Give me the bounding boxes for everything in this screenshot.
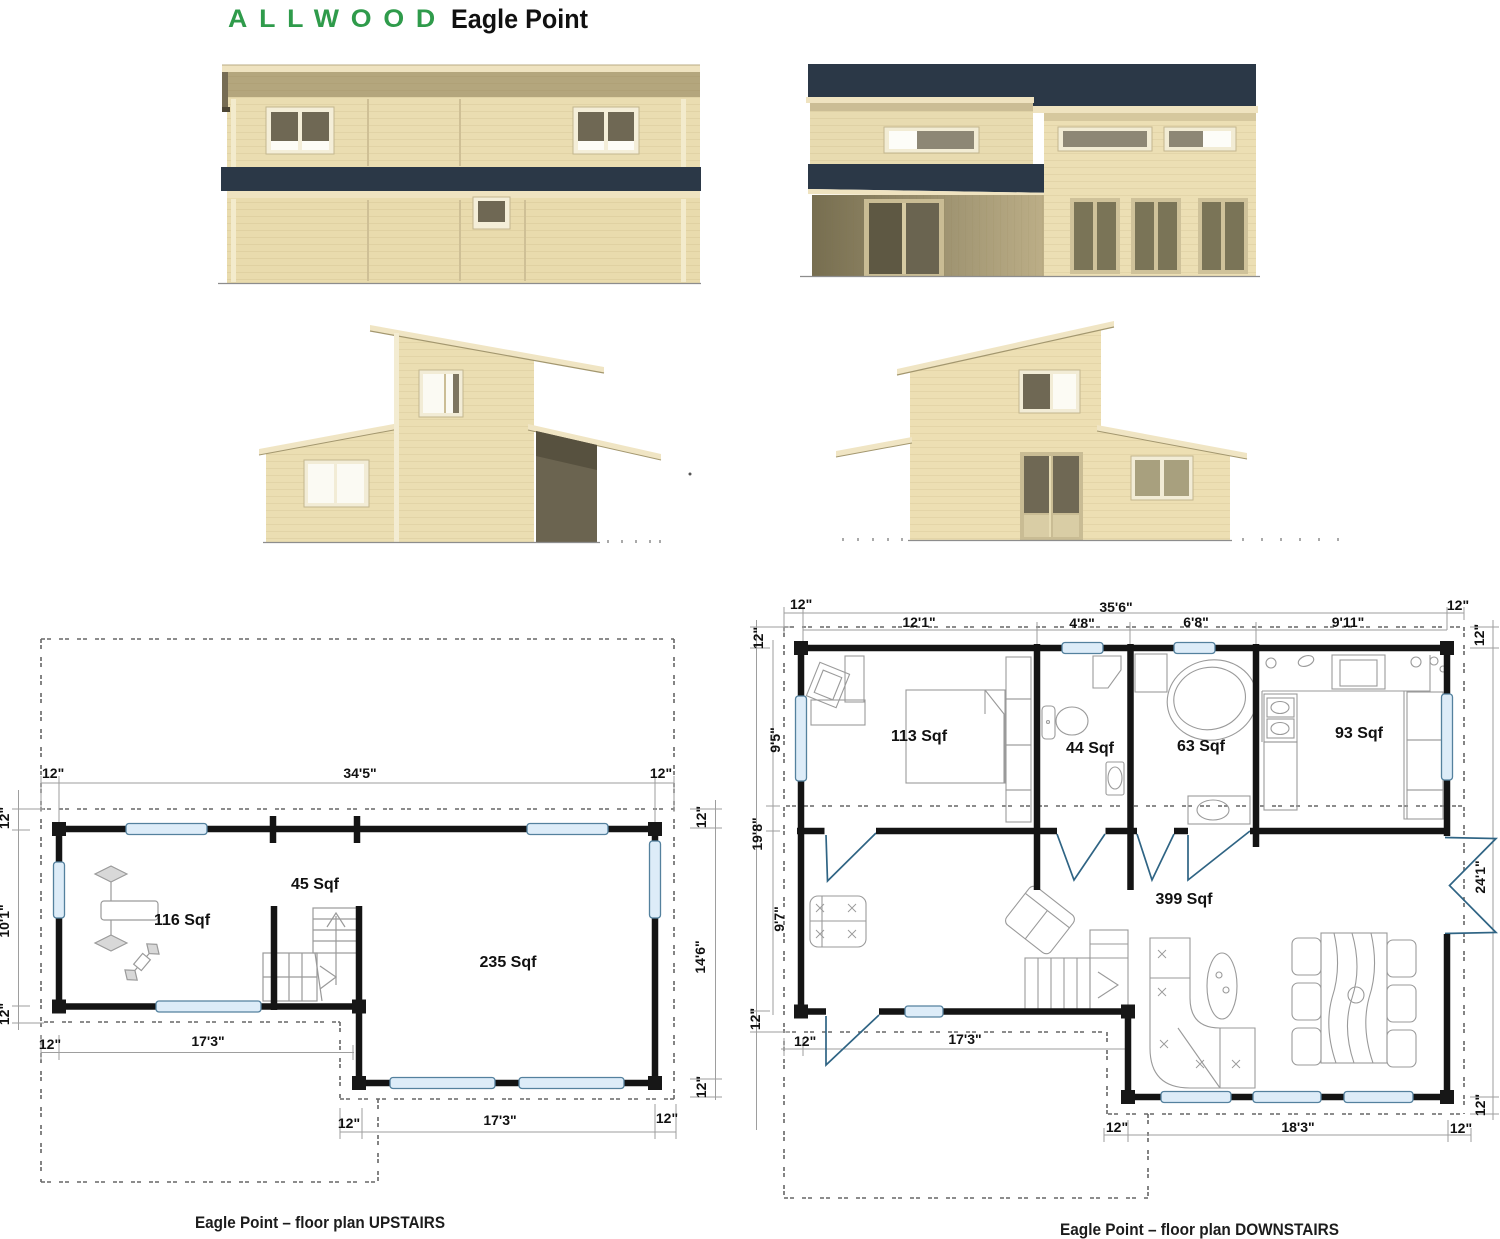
svg-text:Eagle Point – floor plan UPSTA: Eagle Point – floor plan UPSTAIRS <box>195 1214 445 1232</box>
svg-text:10'1": 10'1" <box>0 904 12 937</box>
svg-text:12": 12" <box>790 596 812 612</box>
svg-text:6'8": 6'8" <box>1183 614 1209 630</box>
svg-text:12": 12" <box>750 627 766 649</box>
svg-text:399 Sqf: 399 Sqf <box>1156 891 1214 908</box>
svg-text:12": 12" <box>650 765 672 781</box>
svg-text:116 Sqf: 116 Sqf <box>154 912 211 929</box>
svg-text:17'3": 17'3" <box>483 1112 516 1128</box>
svg-text:24'1": 24'1" <box>1472 860 1488 893</box>
svg-text:17'3": 17'3" <box>948 1031 981 1047</box>
svg-text:12": 12" <box>0 807 12 829</box>
svg-text:93 Sqf: 93 Sqf <box>1335 725 1384 742</box>
svg-text:12": 12" <box>39 1036 61 1052</box>
svg-text:Eagle Point – floor plan DOWN: Eagle Point – floor plan DOWNSTAIRS <box>1060 1221 1339 1239</box>
svg-text:14'6": 14'6" <box>692 940 708 973</box>
svg-text:12": 12" <box>1472 1094 1488 1116</box>
svg-text:19'8": 19'8" <box>749 817 765 850</box>
svg-text:35'6": 35'6" <box>1099 599 1132 615</box>
svg-text:63 Sqf: 63 Sqf <box>1177 738 1226 755</box>
svg-text:12": 12" <box>42 765 64 781</box>
svg-text:12": 12" <box>693 806 709 828</box>
svg-text:12": 12" <box>1447 597 1469 613</box>
svg-text:12": 12" <box>693 1076 709 1098</box>
svg-text:18'3": 18'3" <box>1281 1119 1314 1135</box>
svg-text:12": 12" <box>1471 624 1487 646</box>
svg-text:9'11": 9'11" <box>1332 614 1365 630</box>
svg-text:12": 12" <box>1450 1120 1472 1136</box>
svg-text:12": 12" <box>794 1033 816 1049</box>
svg-text:113 Sqf: 113 Sqf <box>891 728 948 745</box>
svg-text:12": 12" <box>656 1110 678 1126</box>
svg-text:12": 12" <box>0 1003 12 1025</box>
svg-text:17'3": 17'3" <box>191 1033 224 1049</box>
svg-text:Eagle Point: Eagle Point <box>451 4 588 34</box>
svg-text:12'1": 12'1" <box>902 614 935 630</box>
svg-text:4'8": 4'8" <box>1069 615 1095 631</box>
svg-text:45 Sqf: 45 Sqf <box>291 876 340 893</box>
svg-text:9'7": 9'7" <box>771 906 787 932</box>
svg-text:12": 12" <box>747 1008 763 1030</box>
svg-text:235 Sqf: 235 Sqf <box>480 954 538 971</box>
svg-text:12": 12" <box>1106 1119 1128 1135</box>
svg-text:34'5": 34'5" <box>343 765 376 781</box>
svg-text:12": 12" <box>338 1115 360 1131</box>
svg-text:ALLWOOD: ALLWOOD <box>228 5 447 33</box>
svg-text:9'5": 9'5" <box>767 727 783 753</box>
svg-text:44 Sqf: 44 Sqf <box>1066 740 1115 757</box>
